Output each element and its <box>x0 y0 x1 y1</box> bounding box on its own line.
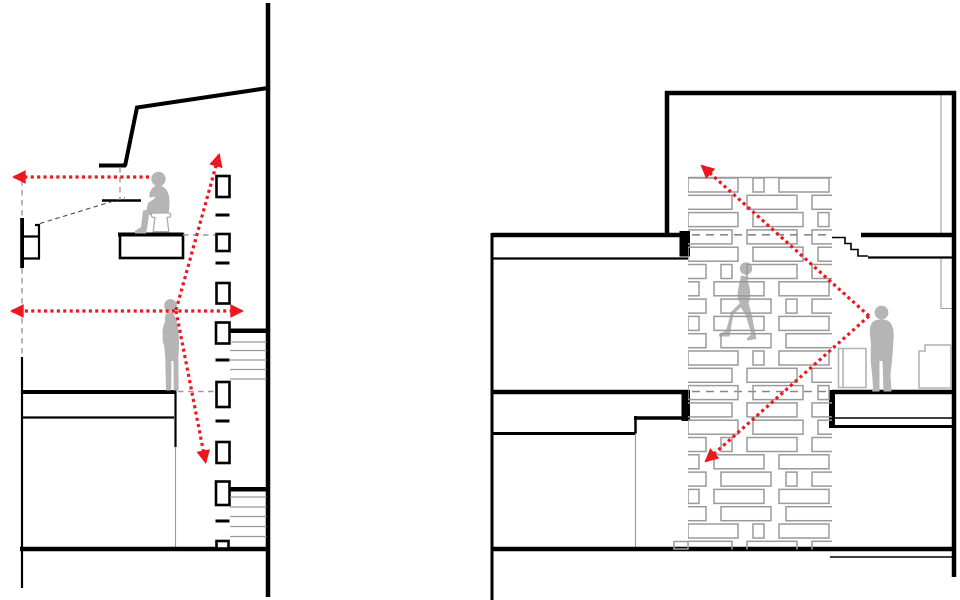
window-section-rect <box>216 323 230 344</box>
brick <box>688 351 738 365</box>
left-structure-walls <box>20 3 270 597</box>
brick <box>877 507 927 521</box>
brick <box>844 455 894 469</box>
brick <box>818 247 868 261</box>
brick <box>591 507 641 521</box>
brick <box>617 368 667 382</box>
mullion-dash <box>216 520 230 523</box>
mullion-dash <box>216 262 230 265</box>
roof-line <box>125 88 268 166</box>
brick <box>721 507 771 521</box>
brick <box>617 195 667 209</box>
brick <box>688 489 699 503</box>
brick <box>591 472 641 486</box>
stair-step-lines <box>230 497 267 537</box>
brick <box>844 524 894 538</box>
brick <box>753 524 764 538</box>
brick <box>747 230 797 244</box>
left-axis-dashed-lines <box>22 167 120 357</box>
brick <box>812 472 862 486</box>
brick <box>714 489 764 503</box>
right-section-panel <box>492 91 956 600</box>
brick <box>779 316 829 330</box>
seated-figure <box>135 172 171 234</box>
left-section-panel <box>12 3 270 597</box>
brick <box>844 213 894 227</box>
sideboard-right <box>919 345 951 388</box>
left-wall-bracket-shelves <box>22 225 40 259</box>
brick <box>877 403 927 417</box>
brick <box>591 334 641 348</box>
brick <box>877 472 927 486</box>
stair-flight-upper <box>230 342 267 379</box>
mullion-dash <box>216 420 230 423</box>
brick <box>656 265 706 279</box>
brick <box>591 438 641 452</box>
brick <box>591 265 641 279</box>
brick <box>591 368 602 382</box>
brick <box>656 299 706 313</box>
brick <box>844 489 894 503</box>
brick <box>812 403 862 417</box>
brick <box>688 213 738 227</box>
brick <box>779 282 829 296</box>
standing-down-arrow <box>176 311 206 462</box>
brick <box>649 455 699 469</box>
right-inner-wall-lines <box>941 95 952 309</box>
brick <box>779 489 829 503</box>
brick <box>591 195 602 209</box>
seated-figure-head <box>151 172 165 186</box>
brick <box>786 334 836 348</box>
window-section-rect <box>217 541 229 549</box>
brick <box>747 195 797 209</box>
brick <box>688 247 738 261</box>
window-section-rect <box>217 234 230 251</box>
brick <box>812 438 862 452</box>
brick <box>682 368 732 382</box>
brick <box>753 351 764 365</box>
brick <box>656 334 706 348</box>
mid-floor-slab-soffit <box>22 392 176 447</box>
brick <box>747 403 797 417</box>
brick <box>649 282 699 296</box>
brick <box>753 420 803 434</box>
brick <box>721 265 732 279</box>
brick <box>623 489 673 503</box>
brick <box>747 265 797 279</box>
standing-figure-right <box>870 306 894 392</box>
brick <box>591 403 641 417</box>
standing-figure-head <box>875 306 889 320</box>
mid-slab-right-cap <box>829 390 835 428</box>
brick <box>779 455 829 469</box>
sideboard-left <box>839 349 867 388</box>
window-mullion-column <box>216 176 269 549</box>
brick <box>656 403 667 417</box>
window-section-rect <box>217 442 230 463</box>
upper-landing-steps <box>832 238 868 257</box>
brick <box>779 351 829 365</box>
brick <box>753 247 803 261</box>
brick <box>721 472 771 486</box>
brick <box>623 316 673 330</box>
brick <box>844 282 894 296</box>
window-section-rect <box>217 283 230 304</box>
brick <box>753 178 764 192</box>
brick <box>682 195 732 209</box>
brick <box>623 455 634 469</box>
brick <box>714 316 764 330</box>
brick <box>688 386 738 400</box>
stair-step-lines <box>230 342 267 379</box>
section-diagrams-svg <box>0 0 960 600</box>
brick <box>753 213 803 227</box>
brick <box>851 507 862 521</box>
brick <box>688 524 738 538</box>
brick <box>656 472 706 486</box>
brick <box>812 195 862 209</box>
brick <box>851 334 862 348</box>
mullion-dash <box>216 359 230 362</box>
brick <box>623 282 634 296</box>
brick <box>688 420 738 434</box>
brick <box>818 213 829 227</box>
floor-stub-upper <box>230 329 269 334</box>
brick <box>779 524 829 538</box>
standing-figure-body <box>870 319 894 391</box>
window-section-rect <box>216 482 230 506</box>
window-section-rect <box>217 176 230 197</box>
mullion-dash <box>216 214 230 217</box>
floor-stub-lower <box>230 487 269 492</box>
brick <box>623 524 673 538</box>
brick <box>877 195 888 209</box>
down-through-screen-arrow <box>706 316 869 461</box>
left-wall-bracket-post <box>20 218 24 268</box>
brick <box>591 299 641 313</box>
stool <box>150 213 171 232</box>
brick <box>877 265 927 279</box>
brick <box>714 455 764 469</box>
brick <box>656 438 706 452</box>
stair-flight-lower <box>230 497 267 537</box>
brick <box>818 386 829 400</box>
brick <box>786 507 836 521</box>
up-through-screen-arrow <box>702 166 869 316</box>
brick <box>877 438 927 452</box>
upper-volume-outline <box>665 91 956 236</box>
brick <box>623 351 673 365</box>
brick <box>786 299 797 313</box>
brick <box>688 316 699 330</box>
brick <box>779 178 829 192</box>
brick <box>747 438 797 452</box>
brick <box>786 472 797 486</box>
sightline-dashed-diagonal <box>40 198 125 224</box>
walking-figure <box>719 262 757 340</box>
standing-figure-body <box>163 312 180 391</box>
window-section-rect <box>217 382 230 407</box>
brick <box>844 178 894 192</box>
mezzanine-platform <box>120 235 183 259</box>
diagram-canvas <box>0 0 960 600</box>
brick <box>747 368 797 382</box>
brick <box>656 507 706 521</box>
